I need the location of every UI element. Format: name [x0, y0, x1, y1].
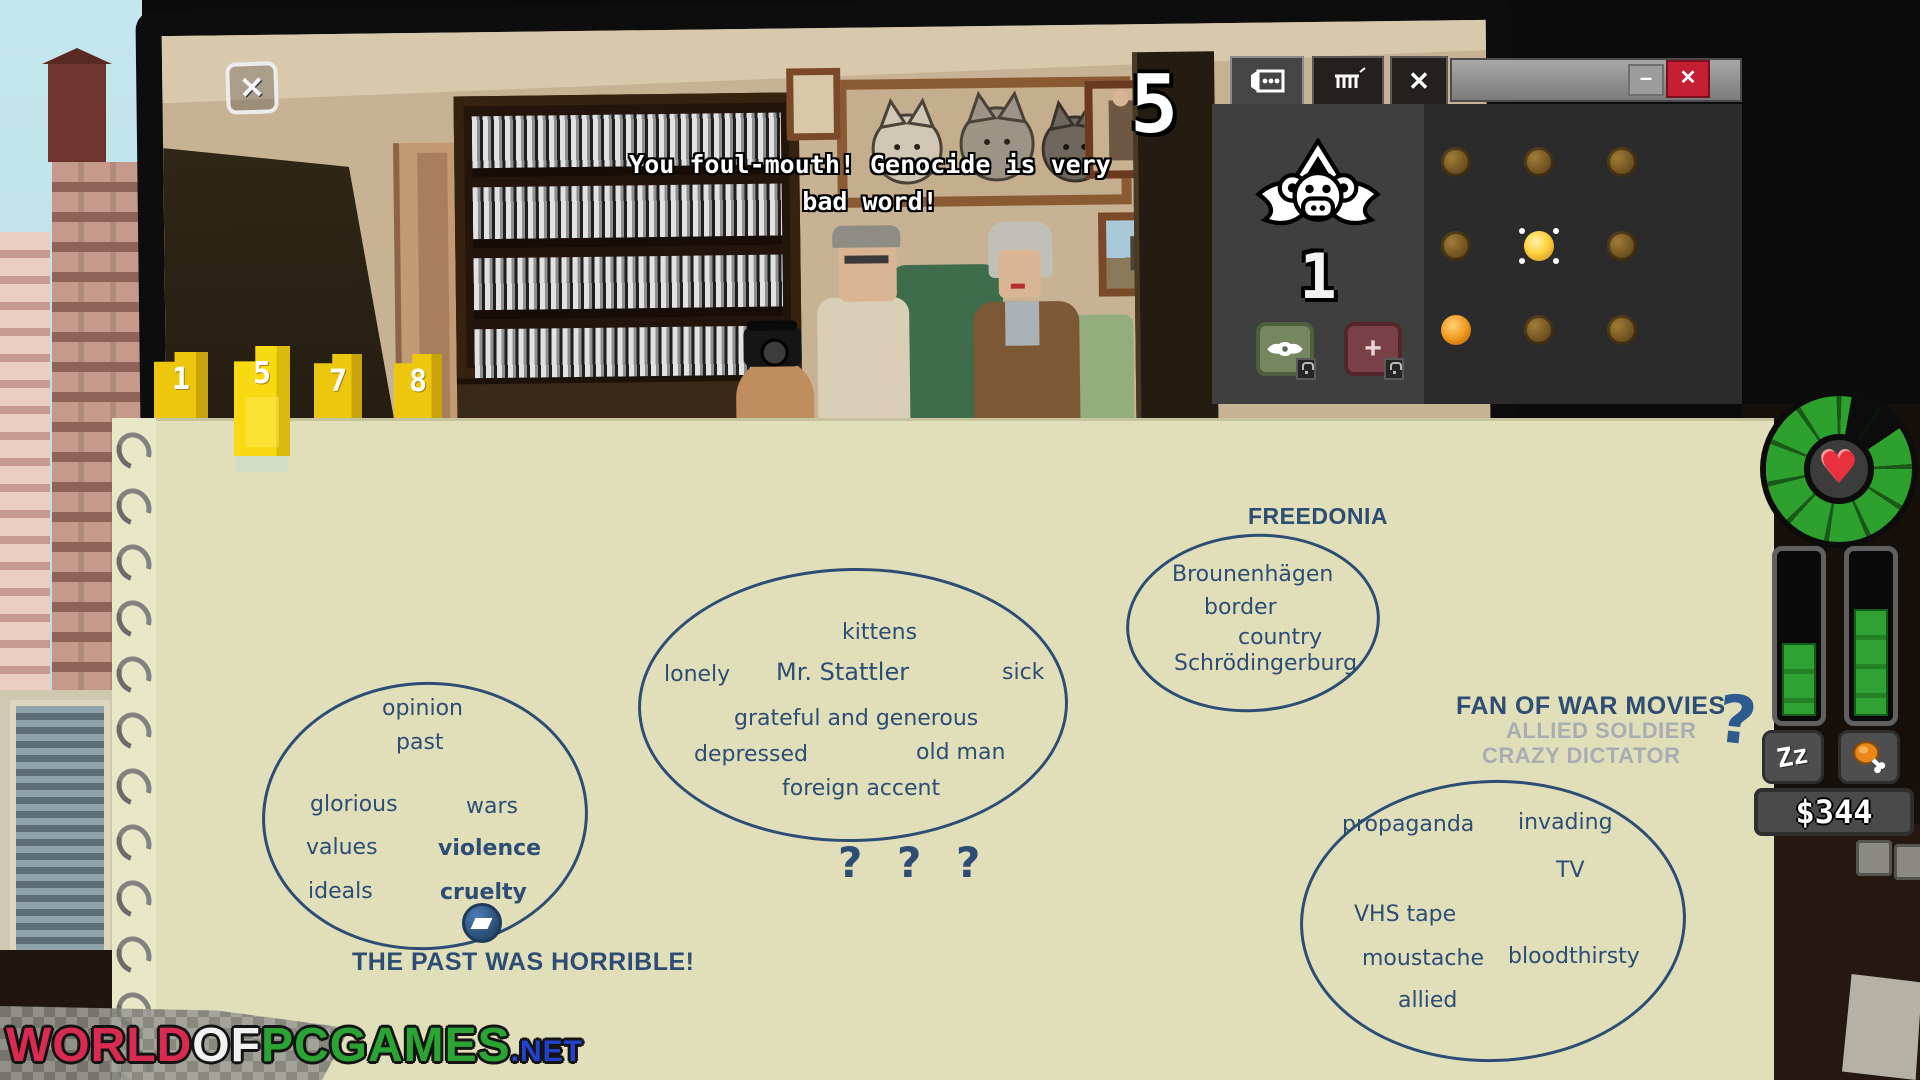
clue-word[interactable]: wars — [466, 794, 518, 819]
milestone-dot — [1524, 147, 1554, 177]
sleep-button[interactable]: Zz — [1762, 730, 1824, 784]
milestone-dot — [1524, 315, 1554, 345]
building-pink — [0, 232, 50, 692]
tab-close[interactable]: ✕ — [1390, 56, 1448, 104]
plus-icon: + — [1364, 334, 1382, 364]
money-display: $344 — [1754, 788, 1914, 836]
water-tower — [48, 62, 106, 162]
clue-word[interactable]: cruelty — [440, 880, 527, 905]
unknown-conclusion-marks: ? ? ? — [838, 838, 990, 887]
lock-icon — [1296, 358, 1316, 380]
guess-question-mark: ? — [1714, 680, 1760, 761]
spiral-binding — [112, 418, 156, 1080]
keyboard-key — [1856, 840, 1892, 876]
conclusion-caption: THE PAST WAS HORRIBLE! — [352, 948, 694, 977]
clue-word[interactable]: ideals — [308, 879, 373, 904]
site-watermark: WORLDOFPCGAMES.NET — [6, 1018, 583, 1073]
old-woman-lips — [1011, 284, 1025, 289]
watermark-net: .NET — [511, 1035, 583, 1073]
clue-word[interactable]: invading — [1518, 810, 1613, 835]
clue-word[interactable]: Mr. Stattler — [776, 658, 909, 686]
old-man-cap — [832, 225, 900, 248]
monkey-count: 1 — [1212, 240, 1424, 313]
old-woman-face — [998, 249, 1041, 298]
milestone-dot — [1441, 147, 1471, 177]
crumpled-paper — [1842, 974, 1920, 1080]
clue-word[interactable]: allied — [1398, 988, 1457, 1013]
close-cage-button[interactable]: ✕ — [225, 61, 279, 115]
milestone-dot — [1607, 315, 1637, 345]
guess-dim-1[interactable]: ALLIED SOLDIER — [1506, 718, 1696, 744]
milestone-dots — [1414, 120, 1664, 372]
monkey-badge-icon — [1250, 138, 1386, 247]
clue-word[interactable]: TV — [1556, 858, 1585, 883]
milestone-dot — [1524, 231, 1554, 261]
food-gauge-fill — [1854, 609, 1888, 716]
game-screenshot: ✕ You foul-mouth! Genocide is very bad w… — [0, 0, 1920, 1080]
clue-word[interactable]: old man — [916, 740, 1005, 765]
drumstick-icon — [1852, 740, 1886, 774]
apartment-window — [0, 690, 120, 990]
clue-word[interactable]: kittens — [842, 620, 917, 645]
clue-word[interactable]: Brounenhägen — [1172, 562, 1333, 587]
guess-dim-2[interactable]: CRAZY DICTATOR — [1482, 743, 1680, 769]
close-window-button[interactable]: ✕ — [1666, 60, 1710, 98]
binder-shelf — [473, 255, 783, 320]
clue-word[interactable]: Schrödingerburg — [1174, 651, 1357, 676]
speech-line-2: bad word! — [620, 187, 1120, 216]
cage-number: 5 — [1130, 58, 1178, 151]
page-tab-7[interactable]: 7 — [314, 354, 362, 420]
food-button[interactable] — [1838, 730, 1900, 784]
clue-word[interactable]: opinion — [382, 696, 463, 721]
sleep-gauge-fill — [1782, 643, 1816, 716]
keyboard-key — [1894, 844, 1920, 880]
small-picture-frame — [786, 68, 841, 141]
old-man-glasses — [844, 255, 888, 264]
eraser-button[interactable] — [462, 903, 502, 943]
clue-word[interactable]: values — [306, 835, 378, 860]
clue-word[interactable]: country — [1238, 625, 1322, 650]
clue-word[interactable]: border — [1204, 595, 1277, 620]
clue-word[interactable]: grateful and generous — [734, 706, 978, 731]
clue-word[interactable]: glorious — [310, 792, 398, 817]
milestone-dot — [1607, 147, 1637, 177]
sleep-zz-icon: Zz — [1775, 740, 1811, 775]
clue-word[interactable]: propaganda — [1342, 812, 1474, 837]
window-blinds — [16, 706, 104, 974]
clue-word[interactable]: violence — [438, 836, 541, 861]
clue-word[interactable]: sick — [1002, 660, 1044, 685]
page-tab-1[interactable]: 1 — [154, 352, 208, 422]
close-tab-icon: ✕ — [1408, 66, 1430, 97]
old-woman-scarf — [1005, 301, 1040, 345]
clue-word[interactable]: bloodthirsty — [1508, 944, 1640, 969]
food-gauge — [1844, 546, 1898, 726]
conclusion-label-freedonia: FREEDONIA — [1248, 503, 1388, 530]
guess-active[interactable]: FAN OF WAR MOVIES — [1456, 692, 1726, 721]
cats-artwork — [846, 86, 1121, 197]
tab-cage-view[interactable] — [1230, 56, 1304, 104]
tab-cage-grill[interactable] — [1312, 56, 1384, 104]
grill-icon — [1328, 66, 1368, 96]
heart-icon: ♥ — [1819, 447, 1858, 491]
speech-line-1: You foul-mouth! Genocide is very — [620, 150, 1120, 179]
cage-icon — [1245, 66, 1289, 96]
rotary-phone — [743, 326, 801, 367]
page-tab-5[interactable]: 5 — [234, 346, 290, 456]
health-gauge-center: ♥ — [1804, 434, 1874, 504]
milestone-dot — [1441, 231, 1471, 261]
clue-word[interactable]: past — [396, 730, 444, 755]
lock-icon — [1384, 358, 1404, 380]
clue-word[interactable]: depressed — [694, 742, 808, 767]
clue-word[interactable]: lonely — [664, 662, 730, 687]
clue-word[interactable]: foreign accent — [782, 776, 940, 801]
minimize-button[interactable]: – — [1628, 64, 1664, 96]
watermark-of: OF — [192, 1018, 261, 1073]
milestone-dot — [1441, 315, 1471, 345]
money-amount: $344 — [1795, 793, 1872, 831]
watermark-pcgames: PCGAMES — [261, 1018, 511, 1073]
page-tab-8[interactable]: 8 — [394, 354, 442, 420]
clue-word[interactable]: moustache — [1362, 946, 1484, 971]
milestone-dot — [1607, 231, 1637, 261]
watermark-world: WORLD — [6, 1018, 192, 1073]
health-gauge: ♥ — [1766, 396, 1912, 542]
sleep-gauge — [1772, 546, 1826, 726]
clue-word[interactable]: VHS tape — [1354, 902, 1456, 927]
